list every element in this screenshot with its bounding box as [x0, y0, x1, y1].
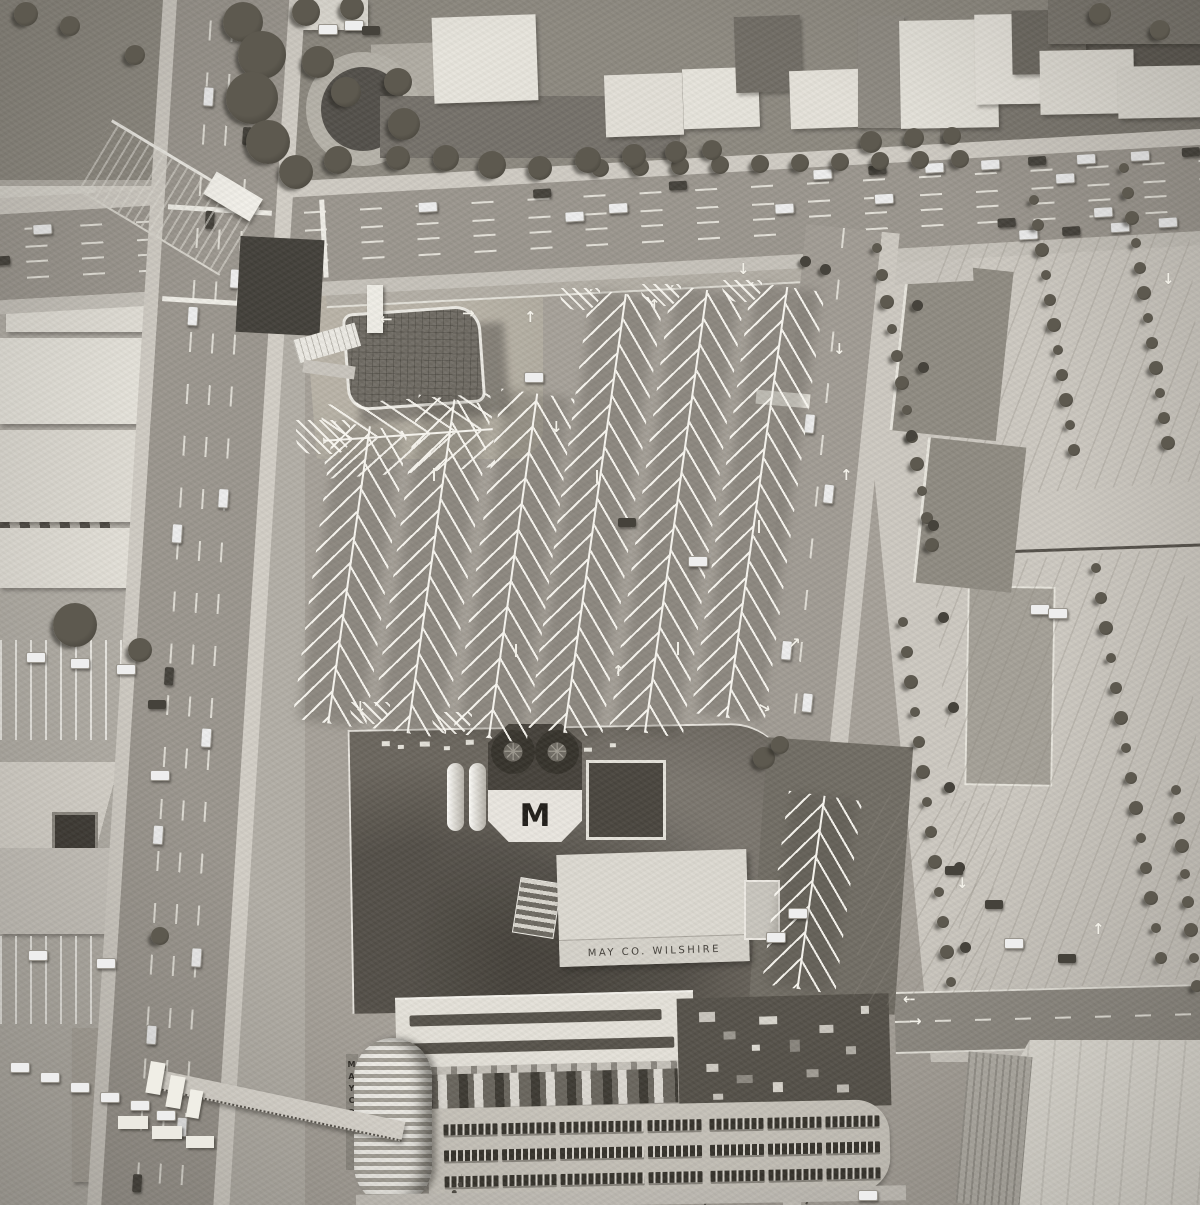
rooftop	[858, 16, 904, 128]
tree	[302, 46, 334, 78]
tree	[1106, 653, 1116, 663]
tree	[478, 151, 506, 179]
tree	[1155, 952, 1167, 964]
window-bank	[502, 1148, 556, 1160]
tree	[946, 977, 956, 987]
cooling-fan-icon: ✳	[535, 730, 579, 774]
car	[200, 727, 212, 748]
rooftop-clutter	[699, 1012, 715, 1022]
car	[766, 932, 786, 943]
penthouse-sign-building: MAY CO. WILSHIRE	[556, 849, 749, 967]
ribbed-annex-building	[955, 1052, 1032, 1205]
pavement-arrow-icon: ↗	[788, 636, 801, 651]
rooftop-clutter	[382, 741, 390, 746]
truck	[152, 1126, 182, 1139]
car	[1076, 153, 1097, 165]
window-bank	[710, 1144, 764, 1156]
roof-sign: MAY CO. WILSHIRE	[588, 943, 722, 958]
tree	[1161, 436, 1175, 450]
tree	[916, 765, 930, 779]
tree	[1182, 896, 1194, 908]
car	[812, 168, 833, 180]
tree	[1136, 833, 1146, 843]
window-bank	[559, 1120, 643, 1133]
aerial-photo: ✳ ✳ M MAY CO. WILSHIRE MAYCO ↓↑↑←→↓↑↓↑↓↗…	[0, 0, 1200, 1205]
tree	[917, 486, 927, 496]
rooftop-tank	[469, 763, 486, 831]
tree	[1114, 711, 1128, 725]
roof-stairs	[512, 877, 562, 939]
tree	[910, 457, 924, 471]
car	[32, 223, 53, 235]
tree	[1180, 869, 1190, 879]
tree	[940, 945, 954, 959]
car	[152, 825, 164, 846]
car	[217, 488, 229, 509]
tree	[895, 376, 909, 390]
tree	[1125, 211, 1139, 225]
tree	[1175, 839, 1189, 853]
car	[156, 1110, 176, 1121]
tree	[913, 736, 925, 748]
light-pole	[677, 642, 679, 655]
car	[618, 518, 636, 527]
tree	[872, 243, 882, 253]
tree	[928, 855, 942, 869]
car	[1182, 147, 1200, 157]
tree	[1191, 980, 1200, 992]
tree	[1131, 238, 1141, 248]
pavement-arrow-icon: →	[909, 1014, 922, 1029]
tree	[1029, 195, 1039, 205]
tree	[1047, 318, 1061, 332]
tree	[433, 145, 459, 171]
tree	[891, 350, 903, 362]
window-bank	[826, 1167, 880, 1179]
car	[801, 692, 814, 713]
car	[533, 188, 551, 198]
tree	[1155, 388, 1165, 398]
tree	[1122, 187, 1134, 199]
pavement-arrow-icon: ↓	[354, 700, 367, 715]
pavement-arrow-icon: ↓	[550, 420, 563, 435]
hedge-tree	[831, 153, 849, 171]
window-bank	[560, 1146, 644, 1159]
palm-tree	[948, 702, 959, 713]
palm-tree	[928, 520, 939, 531]
rooftop	[1118, 65, 1200, 118]
car	[26, 652, 46, 663]
rooftop-clutter	[610, 743, 616, 747]
tree	[753, 747, 775, 769]
tree	[1144, 891, 1158, 905]
car	[344, 20, 364, 31]
rooftop-clutter	[819, 1025, 833, 1033]
tree	[1035, 243, 1049, 257]
palm-tree	[944, 782, 955, 793]
car	[608, 202, 629, 214]
car	[688, 556, 708, 567]
car	[1158, 216, 1179, 228]
tree	[1184, 923, 1198, 937]
tree	[934, 887, 944, 897]
palm-tree	[906, 430, 917, 441]
tree	[331, 77, 361, 107]
car	[774, 202, 795, 214]
tree	[1150, 20, 1170, 40]
rooftop-clutter	[444, 746, 450, 750]
tree	[1137, 286, 1151, 300]
tree	[1032, 219, 1044, 231]
tree	[1068, 444, 1080, 456]
store-monogram: M	[488, 798, 582, 834]
window-bank	[502, 1174, 556, 1186]
tree	[922, 797, 932, 807]
window-bank	[709, 1118, 763, 1130]
pavement-arrow-icon: ↑	[612, 664, 625, 679]
tree	[1044, 294, 1056, 306]
hedge-tree	[871, 152, 889, 170]
tree	[1171, 785, 1181, 795]
rooftop-clutter	[790, 1040, 800, 1052]
tree	[1140, 862, 1152, 874]
palm-tree	[912, 300, 923, 311]
rooftop-equipment-block	[586, 760, 666, 840]
car	[997, 218, 1015, 228]
tree	[1151, 923, 1161, 933]
tree	[1146, 337, 1158, 349]
car	[148, 700, 166, 709]
tree	[53, 603, 97, 647]
sawtooth-roof	[395, 990, 695, 1080]
window-bank	[767, 1117, 821, 1129]
no-parking-hatch	[296, 420, 350, 454]
window-bank	[768, 1143, 822, 1155]
window-bank	[648, 1171, 702, 1183]
tree	[1065, 420, 1075, 430]
rooftop-clutter	[846, 1046, 856, 1054]
car	[788, 908, 808, 919]
hedge-tree	[951, 150, 969, 168]
car	[70, 658, 90, 669]
car	[70, 1082, 90, 1093]
window-bank	[710, 1170, 764, 1182]
tree	[943, 127, 961, 145]
hedge-tree	[751, 155, 769, 173]
car	[150, 770, 170, 781]
tree	[771, 736, 789, 754]
window-bank	[501, 1122, 555, 1134]
rooftop-clutter	[861, 1006, 869, 1014]
rooftop-clutter	[737, 1075, 753, 1083]
window-bank	[768, 1169, 822, 1181]
car	[190, 947, 202, 968]
tree	[528, 156, 552, 180]
tree	[1119, 163, 1129, 173]
palm-tree	[960, 942, 971, 953]
rooftop-clutter	[420, 741, 430, 746]
window-bank	[825, 1115, 879, 1127]
tree	[151, 927, 169, 945]
tree	[1099, 621, 1113, 635]
car	[116, 664, 136, 675]
loading-dock	[402, 1068, 679, 1109]
rooftop-clutter	[759, 1016, 777, 1024]
tree	[1121, 743, 1131, 753]
light-pole	[758, 520, 760, 533]
car	[1004, 938, 1024, 949]
tree	[575, 147, 601, 173]
rooftop-clutter	[706, 1064, 718, 1072]
pavement-arrow-icon: ↑	[648, 298, 661, 313]
car	[985, 900, 1003, 909]
car	[0, 256, 10, 266]
car	[28, 950, 48, 961]
car	[187, 306, 199, 327]
rooftop-clutter	[773, 1082, 783, 1092]
window-bank	[443, 1123, 497, 1135]
tree	[1110, 682, 1122, 694]
pavement-arrow-icon: ↑	[524, 310, 537, 325]
lane-dashes	[895, 1013, 1200, 1023]
rooftop-clutter	[752, 1045, 760, 1051]
tree	[925, 538, 939, 552]
truck	[118, 1116, 148, 1129]
hedge-tree	[791, 154, 809, 172]
car	[874, 193, 895, 205]
tree	[1158, 412, 1170, 424]
tree	[1173, 812, 1185, 824]
tree	[925, 826, 937, 838]
tree	[887, 324, 897, 334]
car	[1055, 172, 1076, 184]
tree	[876, 269, 888, 281]
skylight-strip	[404, 1037, 674, 1055]
tree	[665, 141, 687, 163]
car	[1058, 954, 1076, 963]
rooftop	[789, 69, 861, 129]
pavement-arrow-icon: ↓	[737, 262, 750, 277]
car	[1028, 156, 1046, 166]
rooftop-clutter	[466, 740, 474, 745]
car	[171, 523, 183, 544]
tree	[1134, 262, 1146, 274]
car	[1093, 206, 1114, 218]
car	[1048, 608, 1068, 619]
tree	[622, 144, 646, 168]
tree	[1129, 801, 1143, 815]
light-pole	[515, 644, 517, 657]
store-facade	[427, 1099, 891, 1201]
car	[1030, 604, 1050, 615]
car	[202, 86, 214, 107]
tree	[14, 2, 38, 26]
tree	[898, 617, 908, 627]
tree	[60, 16, 80, 36]
car	[1130, 150, 1151, 162]
tree	[128, 638, 152, 662]
truck	[186, 1136, 214, 1148]
tree	[902, 405, 912, 415]
tree	[125, 45, 145, 65]
car	[145, 1025, 157, 1046]
car	[822, 483, 835, 504]
window-bank	[647, 1119, 701, 1131]
tree	[1053, 345, 1063, 355]
tree	[1189, 953, 1199, 963]
tree	[1143, 313, 1153, 323]
tree	[901, 646, 913, 658]
tree	[860, 131, 882, 153]
tree	[1149, 361, 1163, 375]
tree	[1095, 592, 1107, 604]
car	[100, 1092, 120, 1103]
light-pole	[433, 468, 435, 481]
tree	[904, 675, 918, 689]
car	[417, 201, 438, 213]
pavement-arrow-icon: ←	[380, 312, 393, 327]
tree	[904, 128, 924, 148]
window-bank	[560, 1172, 644, 1185]
tree	[880, 295, 894, 309]
service-yard	[677, 993, 892, 1111]
rooftop	[1048, 0, 1200, 44]
tree	[910, 707, 920, 717]
palm-tree	[800, 256, 811, 267]
tree	[1125, 772, 1137, 784]
car	[40, 1072, 60, 1083]
car	[132, 1174, 142, 1193]
rooftop-clutter	[837, 1084, 849, 1092]
car	[164, 667, 174, 686]
palm-tree	[938, 612, 949, 623]
rooftop-clutter	[584, 748, 592, 752]
rooftop	[604, 73, 684, 138]
pavement-arrow-icon: ↓	[833, 342, 846, 357]
pavement-arrow-icon: ↑	[840, 468, 853, 483]
car	[564, 211, 585, 223]
tree	[279, 155, 313, 189]
car	[524, 372, 544, 383]
car	[96, 958, 116, 969]
hedge-tree	[911, 151, 929, 169]
car	[362, 26, 380, 35]
rooftop-clutter	[723, 1031, 735, 1039]
car	[980, 159, 1001, 171]
palm-tree	[820, 264, 831, 275]
pavement-arrow-icon: →	[462, 306, 475, 321]
penthouse-cooling-tower: ✳ ✳ M	[488, 724, 582, 842]
rooftop	[432, 14, 539, 104]
tree	[324, 146, 352, 174]
tree	[388, 108, 420, 140]
tree	[937, 916, 949, 928]
car	[945, 866, 963, 875]
tree	[226, 72, 278, 124]
tree	[1041, 270, 1051, 280]
tree	[1091, 563, 1101, 573]
rooftop-clutter	[806, 1069, 818, 1077]
window-bank	[826, 1141, 880, 1153]
car	[130, 1100, 150, 1111]
palm-tree	[918, 362, 929, 373]
skylight-strip	[409, 1009, 661, 1027]
tree	[1059, 393, 1073, 407]
car	[318, 24, 338, 35]
tree	[1056, 369, 1068, 381]
tree	[702, 140, 722, 160]
light-pole	[596, 470, 598, 483]
rooftop-clutter	[713, 1094, 723, 1100]
car	[858, 1190, 878, 1201]
car	[669, 181, 687, 191]
rooftop-tank	[447, 763, 464, 831]
tree	[246, 120, 290, 164]
car	[10, 1062, 30, 1073]
car	[1062, 226, 1080, 236]
tree	[386, 146, 410, 170]
tree	[1089, 3, 1111, 25]
tree	[384, 68, 412, 96]
rooftop-clutter	[398, 745, 404, 749]
window-bank	[648, 1145, 702, 1157]
